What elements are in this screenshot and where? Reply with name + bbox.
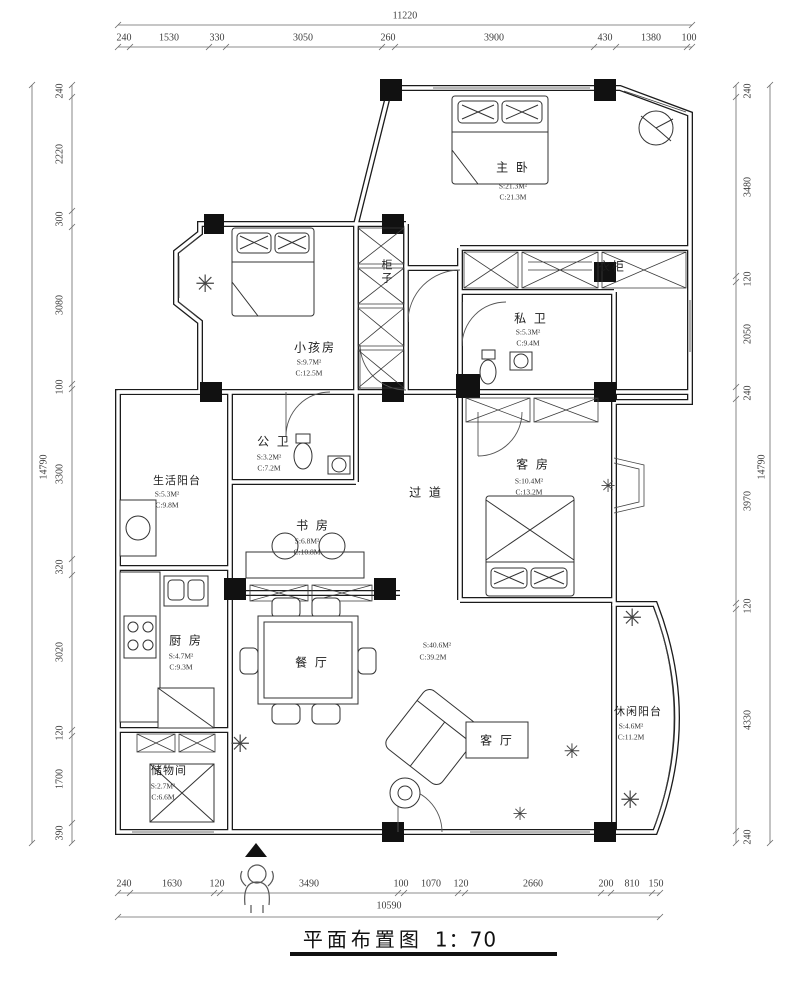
dim-top-total: 11220 xyxy=(393,11,418,22)
title-underline xyxy=(290,952,557,956)
room-kitchen-area: S:4.7M² xyxy=(169,652,194,661)
guest-bed xyxy=(486,496,574,596)
dim-right-seg-0: 240 xyxy=(743,84,754,99)
dim-right-seg-1: 3480 xyxy=(743,177,754,197)
svg-text:✳: ✳ xyxy=(512,804,527,825)
dim-bottom-seg-1: 1630 xyxy=(162,879,182,890)
dim-right-seg-3: 2050 xyxy=(743,324,754,344)
room-guest-name: 客 房 xyxy=(516,456,550,473)
room-leisure-balcony-name: 休闲阳台 xyxy=(614,703,662,719)
drawing-title-scale: 1：70 xyxy=(435,928,497,952)
svg-text:✳: ✳ xyxy=(622,604,642,632)
drawing-title: 平面布置图1：70 xyxy=(303,924,497,953)
room-storage-circ: C:6.6M xyxy=(151,793,174,802)
room-kitchen-name: 厨 房 xyxy=(169,632,203,649)
person-figure xyxy=(241,865,274,913)
dim-left-seg-7: 3020 xyxy=(55,642,66,662)
room-storage-name: 储物间 xyxy=(151,762,187,778)
dim-bottom-seg-3: 3490 xyxy=(299,879,319,890)
label-cabinet: 柜子 xyxy=(378,259,394,285)
room-storage-area: S:2.7M² xyxy=(151,782,176,791)
public-sink xyxy=(328,456,350,474)
dim-top-seg-3: 3050 xyxy=(293,33,313,44)
corner-basin xyxy=(639,111,673,145)
room-kitchen-circ: C:9.3M xyxy=(169,663,192,672)
svg-text:✳: ✳ xyxy=(195,270,215,298)
room-guest-area: S:10.4M² xyxy=(515,477,543,486)
dim-left-seg-3: 3080 xyxy=(55,295,66,315)
dim-left-seg-1: 2220 xyxy=(55,144,66,164)
furniture xyxy=(120,96,673,822)
room-kids-name: 小孩房 xyxy=(294,339,336,356)
svg-text:✳: ✳ xyxy=(230,730,250,758)
dim-right-seg-4: 240 xyxy=(743,386,754,401)
dim-left-total: 14790 xyxy=(39,455,50,480)
dim-left-seg-2: 300 xyxy=(55,212,66,227)
room-guest-circ: C:13.2M xyxy=(516,488,543,497)
floorplan-canvas: ✳ ✳ ✳ ✳ ✳ ✳ ✳ xyxy=(0,0,800,981)
dim-bottom-seg-2: 120 xyxy=(210,879,225,890)
dim-left-seg-8: 120 xyxy=(55,726,66,741)
dim-top-seg-6: 430 xyxy=(598,33,613,44)
dim-left-seg-4: 100 xyxy=(55,380,66,395)
dim-right-seg-5: 3970 xyxy=(743,491,754,511)
room-leisure-balcony-area: S:4.6M² xyxy=(619,722,644,731)
room-study-name: 书 房 xyxy=(296,517,330,534)
dim-bottom-seg-9: 810 xyxy=(625,879,640,890)
dim-top-seg-4: 260 xyxy=(381,33,396,44)
room-study-area: S:6.8M² xyxy=(295,537,320,546)
room-leisure-balcony-circ: C:11.2M xyxy=(618,733,645,742)
room-private-bath-name: 私 卫 xyxy=(514,310,548,327)
room-hallway-name: 过 道 xyxy=(409,484,443,501)
drawing-title-text: 平面布置图 xyxy=(303,928,423,952)
floorplan-page: ✳ ✳ ✳ ✳ ✳ ✳ ✳ 11220 240 1530 330 3050 26… xyxy=(0,0,800,981)
room-public-bath-name: 公 卫 xyxy=(257,433,291,450)
svg-text:✳: ✳ xyxy=(600,476,615,497)
room-public-bath-area: S:3.2M² xyxy=(257,453,282,462)
dim-right-total: 14790 xyxy=(757,455,768,480)
room-living-name: 客 厅 xyxy=(480,732,514,749)
dim-top-seg-1: 1530 xyxy=(159,33,179,44)
dim-top-seg-2: 330 xyxy=(210,33,225,44)
dim-top-seg-7: 1380 xyxy=(641,33,661,44)
svg-text:✳: ✳ xyxy=(564,739,581,763)
dim-top-seg-5: 3900 xyxy=(484,33,504,44)
balcony-sink xyxy=(120,500,156,556)
room-service-balcony-circ: C:9.8M xyxy=(155,501,178,510)
dim-bottom-total: 10590 xyxy=(377,901,402,912)
dim-left-seg-9: 1700 xyxy=(55,769,66,789)
private-toilet xyxy=(480,350,496,384)
living-dining-area: S:40.6M² xyxy=(423,641,451,650)
dim-right-seg-7: 4330 xyxy=(743,710,754,730)
room-study-circ: C:10.8M xyxy=(294,548,321,557)
svg-text:✳: ✳ xyxy=(620,786,640,814)
dim-bottom-seg-10: 150 xyxy=(649,879,664,890)
dim-top-seg-0: 240 xyxy=(117,33,132,44)
room-kids-circ: C:12.5M xyxy=(296,369,323,378)
dim-left-seg-6: 320 xyxy=(55,560,66,575)
kids-bed xyxy=(232,228,314,316)
kitchen-counter xyxy=(120,572,214,728)
public-toilet xyxy=(294,434,312,469)
room-private-bath-area: S:5.3M² xyxy=(516,328,541,337)
room-master-area: S:21.3M² xyxy=(499,182,527,191)
room-master-circ: C:21.3M xyxy=(500,193,527,202)
room-master-name: 主 卧 xyxy=(496,159,530,176)
room-service-balcony-name: 生活阳台 xyxy=(153,472,201,488)
dim-bottom-seg-4: 100 xyxy=(394,879,409,890)
dim-bottom-seg-0: 240 xyxy=(117,879,132,890)
room-private-bath-circ: C:9.4M xyxy=(516,339,539,348)
dim-right-seg-8: 240 xyxy=(743,830,754,845)
room-kids-area: S:9.7M² xyxy=(297,358,322,367)
dim-bottom-seg-6: 120 xyxy=(454,879,469,890)
dim-right-seg-2: 120 xyxy=(743,272,754,287)
dim-bottom-seg-8: 200 xyxy=(599,879,614,890)
label-wardrobe: 衣柜 xyxy=(598,258,626,275)
dim-bottom-seg-7: 2660 xyxy=(523,879,543,890)
private-sink xyxy=(510,352,532,370)
dim-left-seg-10: 390 xyxy=(55,826,66,841)
entrance-marker xyxy=(241,843,274,913)
dim-left-seg-0: 240 xyxy=(55,84,66,99)
dim-right-seg-6: 120 xyxy=(743,599,754,614)
dim-top-seg-8: 100 xyxy=(682,33,697,44)
dim-bottom-seg-5: 1070 xyxy=(421,879,441,890)
living-dining-circ: C:39.2M xyxy=(420,653,447,662)
dim-left-seg-5: 3300 xyxy=(55,464,66,484)
room-service-balcony-area: S:5.3M² xyxy=(155,490,180,499)
room-public-bath-circ: C:7.2M xyxy=(257,464,280,473)
room-dining-name: 餐 厅 xyxy=(295,654,329,671)
